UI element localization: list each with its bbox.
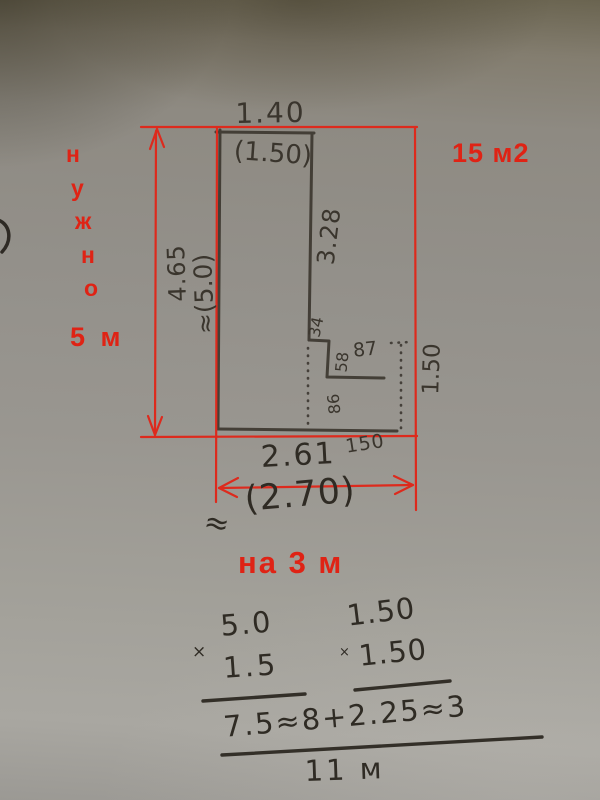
need-letter: н [81, 239, 98, 273]
calc-mult1-bottom: 1.5 [222, 647, 279, 685]
dim-top-width-paren: (1.50) [233, 136, 313, 171]
calc-total: 11 м [304, 751, 385, 788]
dim-notch-side: 58 [331, 351, 352, 373]
area-label: 15 м2 [452, 138, 530, 169]
calc-mult2-bottom: 1.50 [357, 632, 429, 673]
need-letter: ж [75, 205, 98, 239]
need-value-label: 5 м [70, 322, 125, 353]
calc-mult1-sign: × [192, 642, 206, 662]
dim-notch-width: 87 [352, 337, 378, 361]
need-letter: о [84, 272, 98, 306]
calc-mult2-sign: × [339, 645, 350, 660]
target-width-label: на 3 м [238, 545, 343, 581]
dim-right-lower: 1.50 [418, 343, 446, 395]
need-letter: н [66, 138, 98, 172]
paper-sketch-photo: н у ж н о 5 м 15 м2 на 3 м 1.40 (1.50) 4… [0, 0, 600, 800]
need-letter: у [71, 172, 98, 206]
need-label-vertical: н у ж н о [66, 138, 98, 306]
dim-left-height: 4.65 [162, 244, 192, 302]
dim-notch-inner: 86 [323, 393, 344, 415]
dim-top-width: 1.40 [235, 96, 306, 130]
calc-mult1-top: 5.0 [219, 604, 274, 642]
pencil-room-outline [216, 130, 397, 431]
dim-bottom-width: 2.61 [260, 436, 337, 475]
stray-pencil-mark [0, 220, 9, 252]
dim-left-height-approx: ≈(5.0) [188, 253, 220, 334]
